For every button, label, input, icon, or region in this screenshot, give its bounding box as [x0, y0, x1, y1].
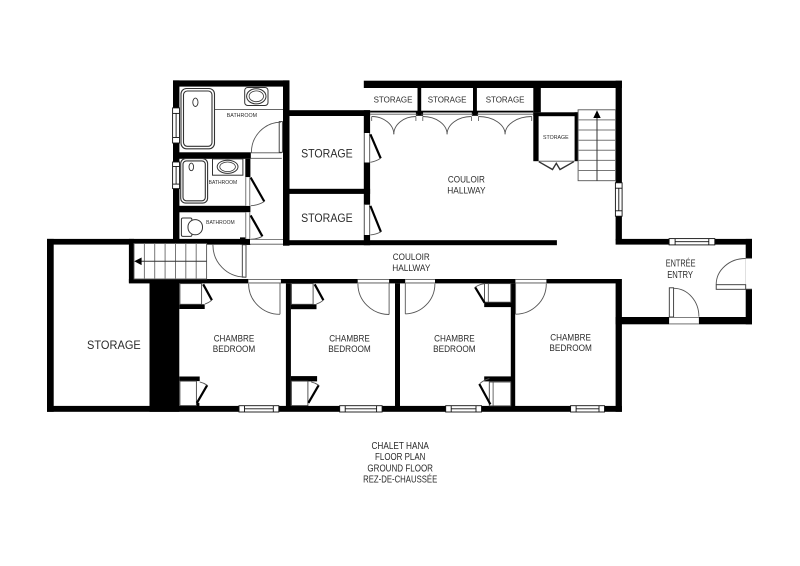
svg-text:STORAGE: STORAGE: [301, 211, 353, 225]
svg-text:CHAMBRE: CHAMBRE: [329, 334, 370, 344]
svg-text:HALLWAY: HALLWAY: [392, 263, 430, 273]
svg-text:STORAGE: STORAGE: [87, 338, 141, 352]
svg-text:CHALET HANA: CHALET HANA: [372, 441, 430, 452]
svg-text:CHAMBRE: CHAMBRE: [214, 334, 255, 344]
svg-text:COULOIR: COULOIR: [448, 175, 485, 185]
svg-text:BATHROOM: BATHROOM: [209, 180, 238, 186]
svg-text:BEDROOM: BEDROOM: [213, 344, 256, 354]
svg-text:BATHROOM: BATHROOM: [227, 113, 258, 119]
svg-text:STORAGE: STORAGE: [301, 147, 353, 161]
svg-text:CHAMBRE: CHAMBRE: [550, 332, 591, 342]
svg-text:CHAMBRE: CHAMBRE: [434, 334, 475, 344]
svg-text:FLOOR PLAN: FLOOR PLAN: [375, 452, 425, 463]
svg-text:STORAGE: STORAGE: [486, 95, 525, 104]
svg-text:BEDROOM: BEDROOM: [328, 344, 371, 354]
svg-text:REZ-DE-CHAUSSÉE: REZ-DE-CHAUSSÉE: [363, 475, 438, 486]
svg-text:STORAGE: STORAGE: [543, 135, 569, 141]
svg-text:HALLWAY: HALLWAY: [447, 186, 485, 196]
svg-text:COULOIR: COULOIR: [393, 252, 430, 262]
svg-text:BEDROOM: BEDROOM: [549, 343, 592, 353]
svg-text:BEDROOM: BEDROOM: [433, 344, 476, 354]
svg-text:STORAGE: STORAGE: [374, 95, 413, 104]
svg-text:GROUND FLOOR: GROUND FLOOR: [367, 463, 433, 474]
svg-text:STORAGE: STORAGE: [428, 95, 467, 104]
svg-text:BATHROOM: BATHROOM: [206, 220, 235, 226]
svg-text:ENTRÉE: ENTRÉE: [666, 259, 696, 270]
svg-text:ENTRY: ENTRY: [667, 270, 693, 281]
